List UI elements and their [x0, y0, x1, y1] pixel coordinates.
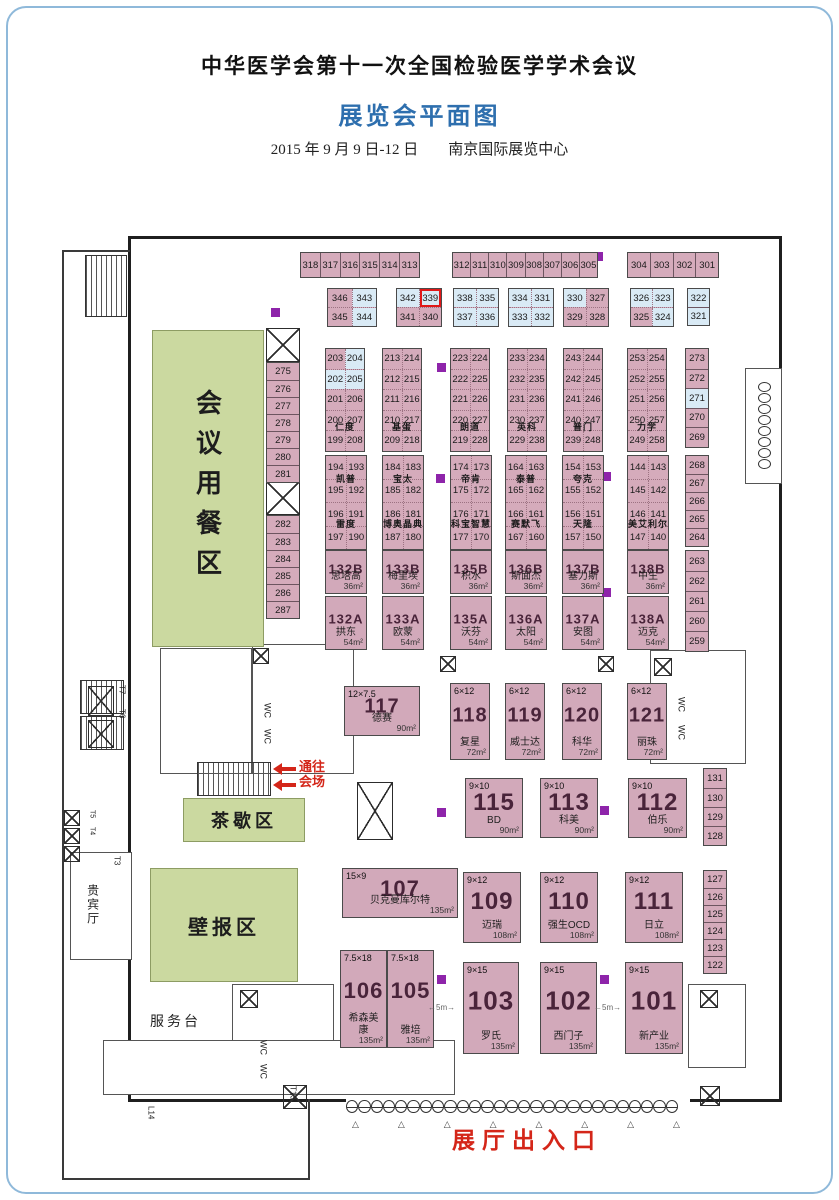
booth-121: 6×12121丽珠72m² [627, 683, 667, 760]
booth-128: 128 [704, 826, 726, 845]
booth-area: 90m² [544, 826, 594, 836]
column-circle-icon [758, 459, 771, 469]
booth-237: 237 [527, 411, 547, 431]
booth-dimensions: 9×15 [467, 965, 487, 975]
booth-115: 9×10115BD90m² [465, 778, 523, 838]
column-box [700, 1086, 720, 1106]
booth-dimensions: 7.5×18 [344, 953, 372, 963]
booth-271: 271 [686, 388, 708, 408]
booth-area: 72m² [566, 748, 598, 758]
booth-180: 180 [403, 527, 424, 550]
entrance-door-icon [358, 1100, 370, 1113]
booth-343: 343 [352, 289, 377, 307]
booth-262: 262 [686, 571, 708, 591]
booth-186: 186 [383, 503, 403, 526]
booth-strip: 312311310309308307306305 [452, 252, 598, 278]
booth-number: 113 [541, 789, 597, 817]
booth-229: 229 [508, 431, 527, 451]
entrance-door-icon [371, 1100, 383, 1113]
column-circle-icon [758, 404, 771, 414]
booth-info: 伯乐90m² [632, 815, 683, 836]
booth-info: 罗氏135m² [467, 1031, 515, 1052]
booth-241: 241 [564, 390, 583, 410]
booth-info: 德赛90m² [348, 713, 416, 734]
wall [62, 250, 64, 1180]
entrance-door-icon [617, 1100, 629, 1113]
booth-129: 129 [704, 807, 726, 826]
entrance-door-icon [395, 1100, 407, 1113]
entrance-door-icon [543, 1100, 555, 1113]
entrance-door-icon [432, 1100, 444, 1113]
booth-block: 330327329328 [563, 288, 609, 327]
booth-dimensions: 7.5×18 [391, 953, 419, 963]
booth-309: 309 [506, 253, 524, 277]
booth-199: 199 [326, 431, 345, 451]
pillar-marker [271, 308, 280, 317]
column-box [253, 648, 269, 664]
booth-208: 208 [345, 431, 365, 451]
booth-244: 244 [583, 349, 603, 369]
booth-number: 138A [628, 611, 668, 626]
booth-info: 塞力斯36m² [566, 571, 600, 592]
booth-170: 170 [471, 527, 492, 550]
entrance-door-icon [457, 1100, 469, 1113]
booth-strip: 282283284285286287 [266, 515, 300, 619]
left-arrow-icon [276, 783, 296, 787]
to-hall-line2: 会场 [299, 775, 325, 790]
booth-136A: 136A太阳54m² [505, 596, 547, 650]
booth-163: 163 [526, 456, 547, 479]
booth-area: 36m² [329, 582, 363, 592]
booth-block: 223224222225221226220227219228朗道 [450, 348, 490, 452]
booth-270: 270 [686, 408, 708, 428]
booth-info: BD90m² [469, 815, 519, 836]
gap-5m-label: ←5m→ [594, 1004, 621, 1012]
booth-150: 150 [583, 527, 604, 550]
entrance-door-icon [518, 1100, 530, 1113]
entrance-door-icon [641, 1100, 653, 1113]
pillar-marker [600, 806, 609, 815]
booth-number: 137A [563, 611, 603, 626]
pillar-marker [437, 808, 446, 817]
booth-272: 272 [686, 369, 708, 389]
entrance-door-row [346, 1100, 691, 1113]
booth-number: 135A [451, 611, 491, 626]
entrance-door-icon [346, 1100, 358, 1113]
booth-info: 迈瑞108m² [467, 920, 517, 941]
column-box [700, 990, 718, 1008]
booth-138A: 138A迈克54m² [627, 596, 669, 650]
booth-block: 154153155152156151157150夸克天隆 [562, 455, 604, 550]
booth-area: 54m² [566, 638, 600, 648]
booth-167: 167 [506, 527, 526, 550]
booth-213: 213 [383, 349, 402, 369]
booth-strip: 318317316315314313 [300, 252, 420, 278]
booth-265: 265 [686, 510, 708, 528]
booth-331: 331 [531, 289, 554, 307]
column-circle-icon [758, 393, 771, 403]
booth-192: 192 [346, 480, 367, 503]
booth-245: 245 [583, 370, 603, 390]
booth-196: 196 [326, 503, 346, 526]
booth-138B: 138B中生36m² [627, 550, 669, 594]
elevator-t5-label: T5 [88, 810, 95, 818]
booth-243: 243 [564, 349, 583, 369]
entrance-door-icon [407, 1100, 419, 1113]
entrance-door-icon [555, 1100, 567, 1113]
booth-102: 9×15102西门子135m² [540, 962, 597, 1054]
room-outline [160, 648, 252, 774]
booth-190: 190 [346, 527, 367, 550]
booth-area: 90m² [469, 826, 519, 836]
booth-215: 215 [402, 370, 422, 390]
column-circle-icon [758, 415, 771, 425]
wall [128, 236, 782, 239]
booth-135A: 135A沃芬54m² [450, 596, 492, 650]
wc-label: WC [676, 697, 685, 712]
booth-block: 213214212215211216210217209218基蛋 [382, 348, 422, 452]
column-circle-icon [758, 437, 771, 447]
booth-173: 173 [471, 456, 492, 479]
lift-box [64, 828, 80, 844]
booth-info: 中生36m² [631, 571, 665, 592]
wall [779, 236, 782, 1102]
gap-5m-label: ←5m→ [428, 1004, 455, 1012]
entrance-door-icon [530, 1100, 542, 1113]
booth-286: 286 [267, 584, 299, 601]
booth-block: 346343345344 [327, 288, 377, 327]
column-circle-icon [758, 448, 771, 458]
booth-133B: 133B梅里埃36m² [382, 550, 424, 594]
wall [308, 1099, 310, 1180]
booth-info: 强生OCD108m² [544, 920, 594, 941]
booth-310: 310 [488, 253, 506, 277]
booth-info: 梅里埃36m² [386, 571, 420, 592]
booth-279: 279 [267, 431, 299, 448]
booth-220: 220 [451, 411, 470, 431]
stairs-to-hall [197, 762, 271, 796]
booth-dimensions: 9×12 [467, 875, 487, 885]
booth-112: 9×10112伯乐90m² [628, 778, 687, 838]
booth-number: 115 [466, 789, 522, 817]
to-hall-line1: 通往 [299, 760, 325, 775]
booth-info: 科华72m² [566, 737, 598, 758]
elevator-t6-label: T6 [117, 709, 125, 718]
booth-dimensions: 6×12 [454, 686, 474, 696]
booth-275: 275 [267, 363, 299, 380]
booth-346: 346 [328, 289, 352, 307]
booth-146: 146 [628, 503, 648, 526]
booth-area: 135m² [346, 906, 454, 916]
booth-311: 311 [470, 253, 488, 277]
booth-block: 334331333332 [508, 288, 554, 327]
poster-zone: 壁报区 [150, 868, 298, 982]
right-wall-columns [758, 382, 771, 469]
booth-dimensions: 9×12 [629, 875, 649, 885]
booth-247: 247 [583, 411, 603, 431]
entrance-door-icon [666, 1100, 678, 1113]
pillar-marker [437, 975, 446, 984]
booth-info: 西门子135m² [544, 1031, 593, 1052]
booth-183: 183 [403, 456, 424, 479]
booth-151: 151 [583, 503, 604, 526]
lift-box [266, 328, 300, 362]
booth-number: 101 [626, 985, 682, 1016]
entrance-door-icon [506, 1100, 518, 1113]
wc-label: WC [262, 729, 271, 744]
booth-177: 177 [451, 527, 471, 550]
booth-240: 240 [564, 411, 583, 431]
booth-number: 132A [326, 611, 366, 626]
booth-223: 223 [451, 349, 470, 369]
stairs [85, 255, 127, 317]
booth-strip: 275276277278279280281 [266, 362, 300, 483]
booth-strip: 263262261260259 [685, 550, 709, 652]
booth-342: 342 [397, 289, 419, 307]
column-box [440, 656, 456, 672]
booth-strip: 304303302301 [627, 252, 719, 278]
booth-dimensions: 9×15 [629, 965, 649, 975]
triangle-marker-icon: △ [398, 1120, 405, 1130]
booth-276: 276 [267, 380, 299, 397]
booth-153: 153 [583, 456, 604, 479]
lift-box [266, 481, 300, 515]
booth-161: 161 [526, 503, 547, 526]
entrance-door-icon [592, 1100, 604, 1113]
booth-info: 丽珠72m² [631, 737, 663, 758]
booth-area: 90m² [348, 724, 416, 734]
booth-info: 安图54m² [566, 627, 600, 648]
booth-201: 201 [326, 390, 345, 410]
entrance-door-icon [629, 1100, 641, 1113]
booth-217: 217 [402, 411, 422, 431]
booth-248: 248 [583, 431, 603, 451]
wall [128, 236, 131, 1102]
column-box [240, 990, 258, 1008]
booth-147: 147 [628, 527, 648, 550]
booth-307: 307 [543, 253, 561, 277]
booth-area: 36m² [566, 582, 600, 592]
booth-info: 沃芬54m² [454, 627, 488, 648]
booth-dimensions: 6×12 [631, 686, 651, 696]
booth-area: 54m² [631, 638, 665, 648]
entrance-door-icon [580, 1100, 592, 1113]
booth-strip: 268267266265264 [685, 455, 709, 547]
booth-info: 思塔高36m² [329, 571, 363, 592]
booth-strip: 322321 [687, 288, 710, 326]
booth-261: 261 [686, 591, 708, 611]
floor-plan: 通往 会场 △△△△△△△△ 会议用餐区茶歇区壁报区31831731631531… [0, 0, 839, 1200]
booth-336: 336 [476, 308, 499, 326]
booth-334: 334 [509, 289, 531, 307]
booth-105: 7.5×18105雅培135m² [387, 950, 434, 1048]
booth-strip: 127126125124123122 [703, 870, 727, 974]
booth-block: 203204202205201206200207199208仁度 [325, 348, 365, 452]
booth-212: 212 [383, 370, 402, 390]
booth-269: 269 [686, 427, 708, 447]
lift-box [88, 720, 114, 748]
booth-233: 233 [508, 349, 527, 369]
booth-info: 复星72m² [454, 737, 486, 758]
booth-284: 284 [267, 550, 299, 567]
column-box [598, 656, 614, 672]
booth-135B: 135B积水36m² [450, 550, 492, 594]
booth-number: 121 [628, 704, 666, 727]
pillar-marker [600, 975, 609, 984]
booth-info: 雅培135m² [391, 1025, 430, 1046]
booth-strip: 131130129128 [703, 768, 727, 846]
booth-block: 233234232235231236230237229238英科 [507, 348, 547, 452]
booth-326: 326 [631, 289, 652, 307]
booth-131: 131 [704, 769, 726, 788]
wc-label: WC [258, 1040, 267, 1055]
booth-345: 345 [328, 308, 352, 326]
booth-area: 36m² [386, 582, 420, 592]
booth-325: 325 [631, 308, 652, 326]
booth-info: 新产业135m² [629, 1031, 679, 1052]
booth-area: 90m² [632, 826, 683, 836]
booth-259: 259 [686, 631, 708, 651]
booth-110: 9×12110强生OCD108m² [540, 872, 598, 943]
booth-number: 133A [383, 611, 423, 626]
pillar-marker [436, 474, 445, 483]
booth-number: 106 [341, 978, 386, 1004]
booth-area: 135m² [391, 1036, 430, 1046]
booth-block: 243244242245241246240247239248普门 [563, 348, 603, 452]
booth-207: 207 [345, 411, 365, 431]
pillar-marker [437, 363, 446, 372]
booth-181: 181 [403, 503, 424, 526]
booth-302: 302 [673, 253, 696, 277]
entrance-door-icon [444, 1100, 456, 1113]
booth-234: 234 [527, 349, 547, 369]
booth-206: 206 [345, 390, 365, 410]
booth-308: 308 [525, 253, 543, 277]
booth-316: 316 [340, 253, 360, 277]
booth-339: 339 [419, 289, 442, 307]
booth-145: 145 [628, 480, 648, 503]
booth-number: 103 [464, 985, 518, 1016]
booth-164: 164 [506, 456, 526, 479]
booth-block: 194193195192196191197190凯普雷度 [325, 455, 367, 550]
booth-block: 144143145142146141147140美艾利尔 [627, 455, 669, 550]
booth-info: 日立108m² [629, 920, 679, 941]
hall-entrance-label: 展厅出入口 [452, 1128, 602, 1152]
entrance-door-icon [494, 1100, 506, 1113]
booth-106: 7.5×18106希森美康135m² [340, 950, 387, 1048]
booth-314: 314 [379, 253, 399, 277]
booth-area: 108m² [629, 931, 679, 941]
booth-283: 283 [267, 533, 299, 550]
booth-328: 328 [586, 308, 609, 326]
booth-338: 338 [454, 289, 476, 307]
booth-area: 135m² [629, 1042, 679, 1052]
booth-277: 277 [267, 397, 299, 414]
booth-226: 226 [470, 390, 490, 410]
to-conference-hall-label: 通往 会场 [299, 760, 325, 790]
booth-130: 130 [704, 788, 726, 807]
triangle-marker-icon: △ [352, 1120, 359, 1130]
booth-268: 268 [686, 456, 708, 474]
booth-174: 174 [451, 456, 471, 479]
booth-number: 110 [541, 888, 597, 916]
booth-257: 257 [647, 411, 667, 431]
booth-335: 335 [476, 289, 499, 307]
triangle-marker-icon: △ [444, 1120, 451, 1130]
booth-330: 330 [564, 289, 586, 307]
service-desk-counter [103, 1040, 455, 1095]
booth-204: 204 [345, 349, 365, 369]
wc-label: WC [258, 1064, 267, 1079]
booth-number: 105 [388, 978, 433, 1004]
booth-211: 211 [383, 390, 402, 410]
booth-282: 282 [267, 516, 299, 533]
column-circle-icon [758, 382, 771, 392]
booth-255: 255 [647, 370, 667, 390]
booth-214: 214 [402, 349, 422, 369]
booth-242: 242 [564, 370, 583, 390]
booth-251: 251 [628, 390, 647, 410]
booth-341: 341 [397, 308, 419, 326]
booth-dimensions: 9×15 [544, 965, 564, 975]
booth-176: 176 [451, 503, 471, 526]
booth-info: 希森美康135m² [344, 1013, 383, 1046]
booth-137B: 137B塞力斯36m² [562, 550, 604, 594]
booth-249: 249 [628, 431, 647, 451]
vip-room [70, 852, 132, 960]
booth-info: 积水36m² [454, 571, 488, 592]
booth-118: 6×12118复星72m² [450, 683, 490, 760]
booth-area: 72m² [454, 748, 486, 758]
booth-area: 36m² [631, 582, 665, 592]
triangle-marker-icon: △ [673, 1120, 680, 1130]
entrance-door-icon [469, 1100, 481, 1113]
booth-231: 231 [508, 390, 527, 410]
booth-block: 184183185182186181187180宝太博奥晶典 [382, 455, 424, 550]
booth-142: 142 [648, 480, 669, 503]
wall [62, 1178, 310, 1180]
booth-260: 260 [686, 611, 708, 631]
booth-area: 135m² [344, 1036, 383, 1046]
booth-306: 306 [561, 253, 579, 277]
dock-l14-label: L14 [146, 1106, 154, 1119]
booth-165: 165 [506, 480, 526, 503]
booth-number: 119 [506, 704, 544, 727]
booth-318: 318 [301, 253, 320, 277]
booth-166: 166 [506, 503, 526, 526]
booth-area: 54m² [386, 638, 420, 648]
booth-333: 333 [509, 308, 531, 326]
booth-dimensions: 6×12 [509, 686, 529, 696]
dining-zone: 会议用餐区 [152, 330, 264, 647]
booth-228: 228 [470, 431, 490, 451]
booth-187: 187 [383, 527, 403, 550]
booth-111: 9×12111日立108m² [625, 872, 683, 943]
booth-block: 174173175172176171177170帝肯科宝智慧 [450, 455, 492, 550]
entrance-door-icon [383, 1100, 395, 1113]
booth-337: 337 [454, 308, 476, 326]
booth-266: 266 [686, 492, 708, 510]
booth-191: 191 [346, 503, 367, 526]
booth-200: 200 [326, 411, 345, 431]
booth-287: 287 [267, 601, 299, 618]
booth-344: 344 [352, 308, 377, 326]
booth-225: 225 [470, 370, 490, 390]
booth-246: 246 [583, 390, 603, 410]
booth-107: 15×9107贝克曼库尔特135m² [342, 868, 458, 918]
booth-123: 123 [704, 939, 726, 956]
booth-227: 227 [470, 411, 490, 431]
